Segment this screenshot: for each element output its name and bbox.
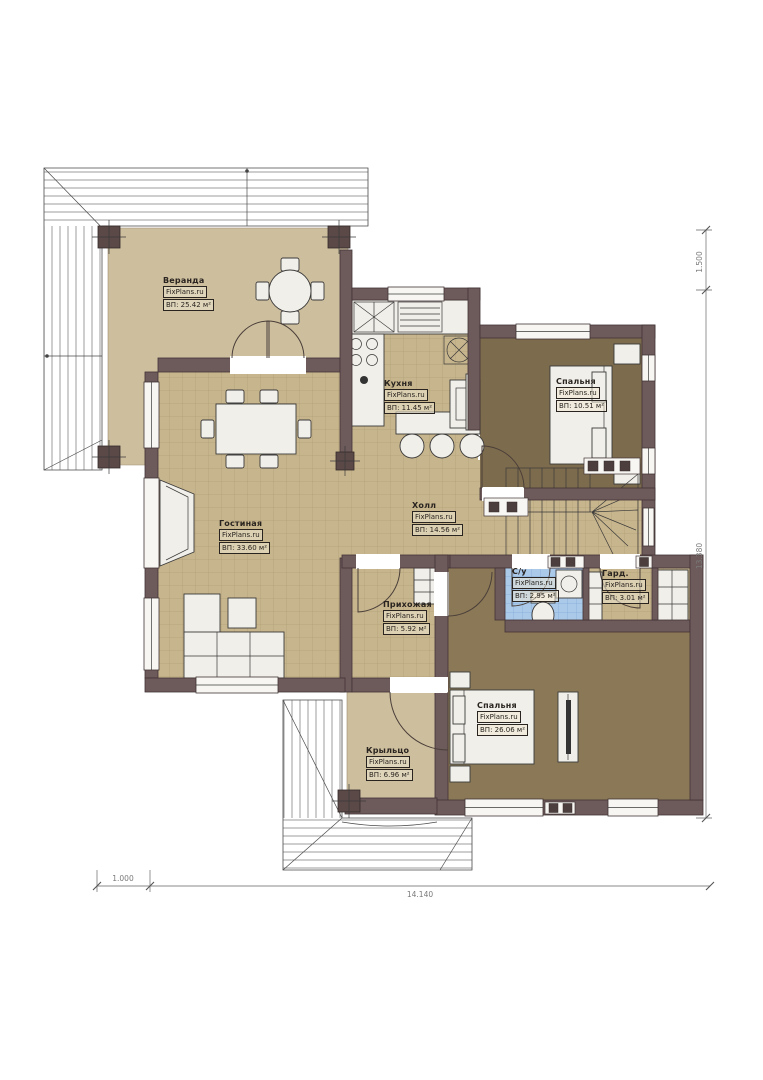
room-label-bedroom-top: Спальня FixPlans.ru ВП: 10.51 м²: [556, 377, 607, 412]
room-name: Спальня: [477, 701, 528, 710]
room-brand: FixPlans.ru: [219, 529, 263, 541]
room-brand: FixPlans.ru: [383, 610, 427, 622]
room-brand: FixPlans.ru: [366, 756, 410, 768]
radiator-bottom-icon: [558, 692, 578, 762]
room-brand: FixPlans.ru: [384, 389, 428, 401]
room-label-kitchen: Кухня FixPlans.ru ВП: 11.45 м²: [384, 379, 435, 414]
room-area: ВП: 14.56 м²: [412, 524, 463, 536]
room-name: Крыльцо: [366, 746, 413, 755]
room-name: Гостиная: [219, 519, 270, 528]
room-brand: FixPlans.ru: [556, 387, 600, 399]
dimension-bottom: 1.000 14.140: [93, 870, 714, 899]
room-brand: FixPlans.ru: [512, 577, 556, 589]
room-name: Гард.: [602, 569, 649, 578]
room-name: Кухня: [384, 379, 435, 388]
room-label-hall: Холл FixPlans.ru ВП: 14.56 м²: [412, 501, 463, 536]
fireplace-icon: [160, 480, 194, 566]
room-brand: FixPlans.ru: [477, 711, 521, 723]
dim-bottom-main: 14.140: [407, 890, 433, 899]
floor-plan-drawing: 1.500 13.380 1.000 14.140: [0, 0, 763, 1080]
dim-right-main: 13.380: [695, 543, 704, 569]
room-area: ВП: 2.95 м²: [512, 590, 559, 602]
bar-stools-icon: [400, 434, 484, 458]
room-area: ВП: 26.06 м²: [477, 724, 528, 736]
room-label-porch: Крыльцо FixPlans.ru ВП: 6.96 м²: [366, 746, 413, 781]
room-label-hallway: Прихожая FixPlans.ru ВП: 5.92 м²: [383, 600, 432, 635]
room-brand: FixPlans.ru: [163, 286, 207, 298]
room-brand: FixPlans.ru: [412, 511, 456, 523]
room-label-living: Гостиная FixPlans.ru ВП: 33.60 м²: [219, 519, 270, 554]
room-area: ВП: 11.45 м²: [384, 402, 435, 414]
room-label-veranda: Веранда FixPlans.ru ВП: 25.42 м²: [163, 276, 214, 311]
room-name: Прихожая: [383, 600, 432, 609]
room-name: С/у: [512, 567, 559, 576]
room-area: ВП: 5.92 м²: [383, 623, 430, 635]
room-name: Спальня: [556, 377, 607, 386]
room-brand: FixPlans.ru: [602, 579, 646, 591]
room-label-wardrobe: Гард. FixPlans.ru ВП: 3.01 м²: [602, 569, 649, 604]
room-area: ВП: 6.96 м²: [366, 769, 413, 781]
room-name: Холл: [412, 501, 463, 510]
room-label-bathroom: С/у FixPlans.ru ВП: 2.95 м²: [512, 567, 559, 602]
room-name: Веранда: [163, 276, 214, 285]
dim-bottom-left: 1.000: [112, 874, 134, 883]
room-label-bedroom-bottom: Спальня FixPlans.ru ВП: 26.06 м²: [477, 701, 528, 736]
washbasin-icon: [556, 570, 582, 598]
room-area: ВП: 33.60 м²: [219, 542, 270, 554]
room-area: ВП: 25.42 м²: [163, 299, 214, 311]
room-area: ВП: 3.01 м²: [602, 592, 649, 604]
dim-right-top: 1.500: [695, 251, 704, 273]
room-area: ВП: 10.51 м²: [556, 400, 607, 412]
floor-plan-page: 1.500 13.380 1.000 14.140 Веранда FixPla…: [0, 0, 763, 1080]
